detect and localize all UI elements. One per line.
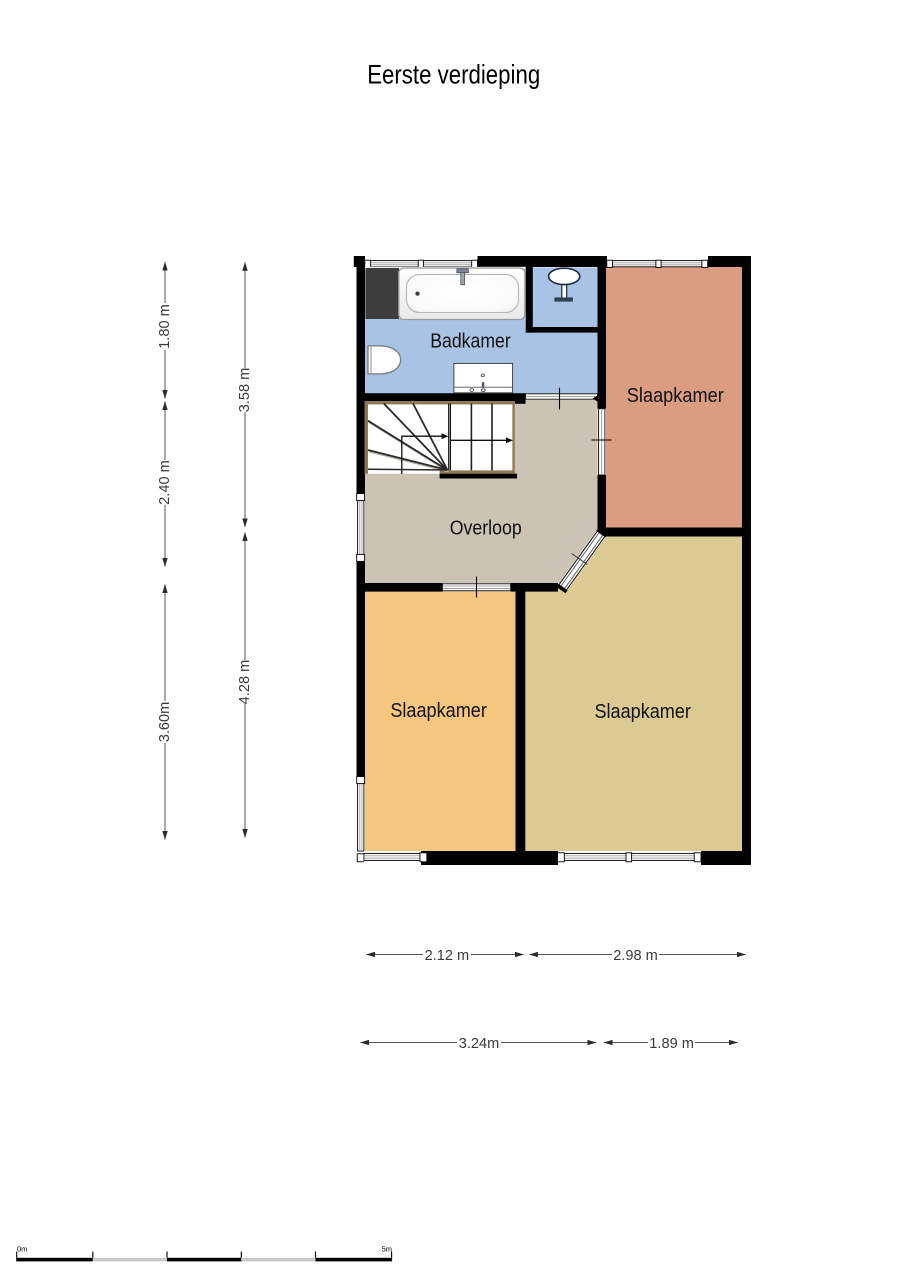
svg-text:2.98 m: 2.98 m [613,948,658,964]
svg-text:Slaapkamer: Slaapkamer [390,699,487,722]
svg-text:3.58 m: 3.58 m [237,368,253,413]
svg-text:5m: 5m [382,1245,392,1254]
svg-text:2.12 m: 2.12 m [425,948,470,964]
svg-text:Slaapkamer: Slaapkamer [594,700,691,723]
svg-text:Overloop: Overloop [450,517,522,540]
svg-text:Badkamer: Badkamer [430,330,511,353]
svg-text:Slaapkamer: Slaapkamer [627,384,724,407]
svg-text:4.28 m: 4.28 m [237,660,253,705]
svg-text:Eerste verdieping: Eerste verdieping [367,60,540,90]
svg-text:3.60m: 3.60m [157,702,173,743]
svg-text:1.80 m: 1.80 m [157,304,173,349]
svg-text:0m: 0m [17,1245,27,1254]
svg-text:3.24m: 3.24m [459,1036,500,1052]
svg-text:2.40 m: 2.40 m [157,460,173,505]
svg-text:1.89 m: 1.89 m [649,1036,694,1052]
